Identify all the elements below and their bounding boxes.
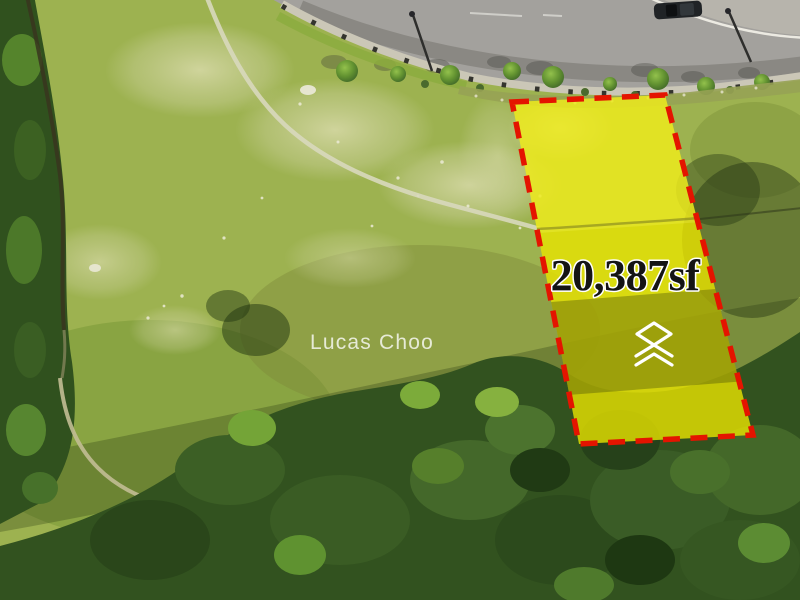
parked-car — [654, 0, 703, 19]
white-debris — [89, 264, 101, 272]
white-debris — [300, 85, 316, 95]
plot-area-label: 20,387sf — [551, 251, 702, 300]
aerial-photo-canvas: 20,387sf Lucas Choo — [0, 0, 800, 600]
aerial-photo: 20,387sf Lucas Choo — [0, 0, 800, 600]
photographer-watermark: Lucas Choo — [310, 331, 434, 354]
